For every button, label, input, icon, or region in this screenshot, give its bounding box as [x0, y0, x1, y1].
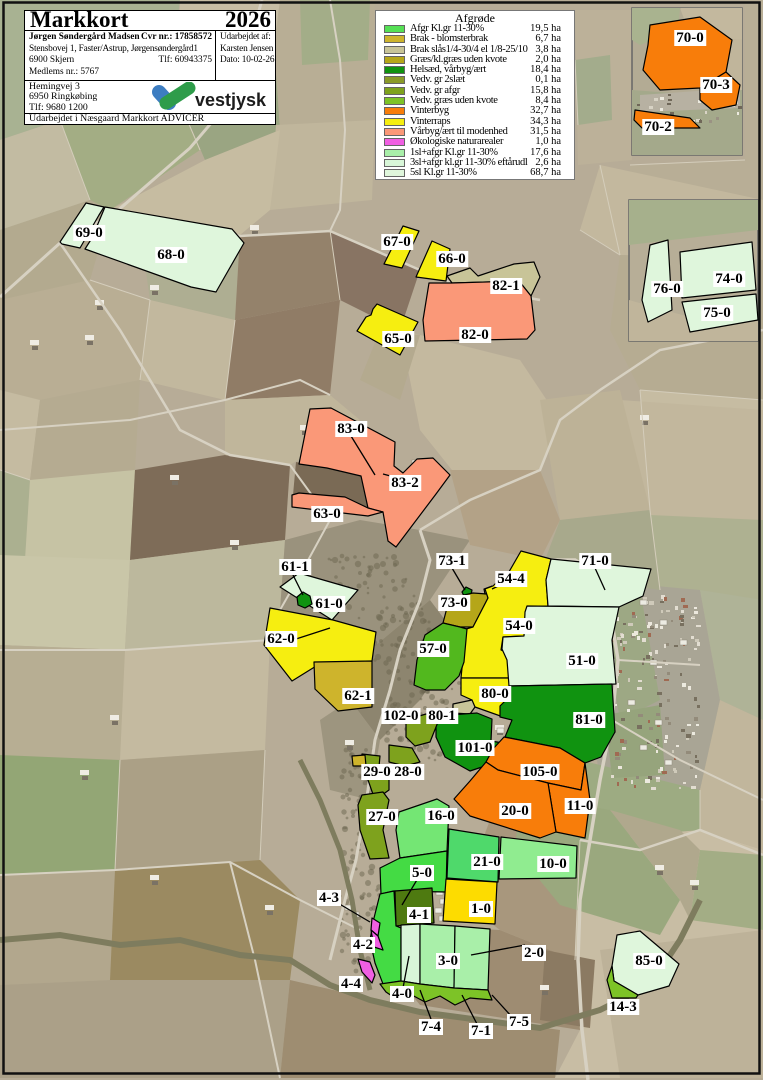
svg-text:vestjysk: vestjysk — [195, 90, 267, 110]
